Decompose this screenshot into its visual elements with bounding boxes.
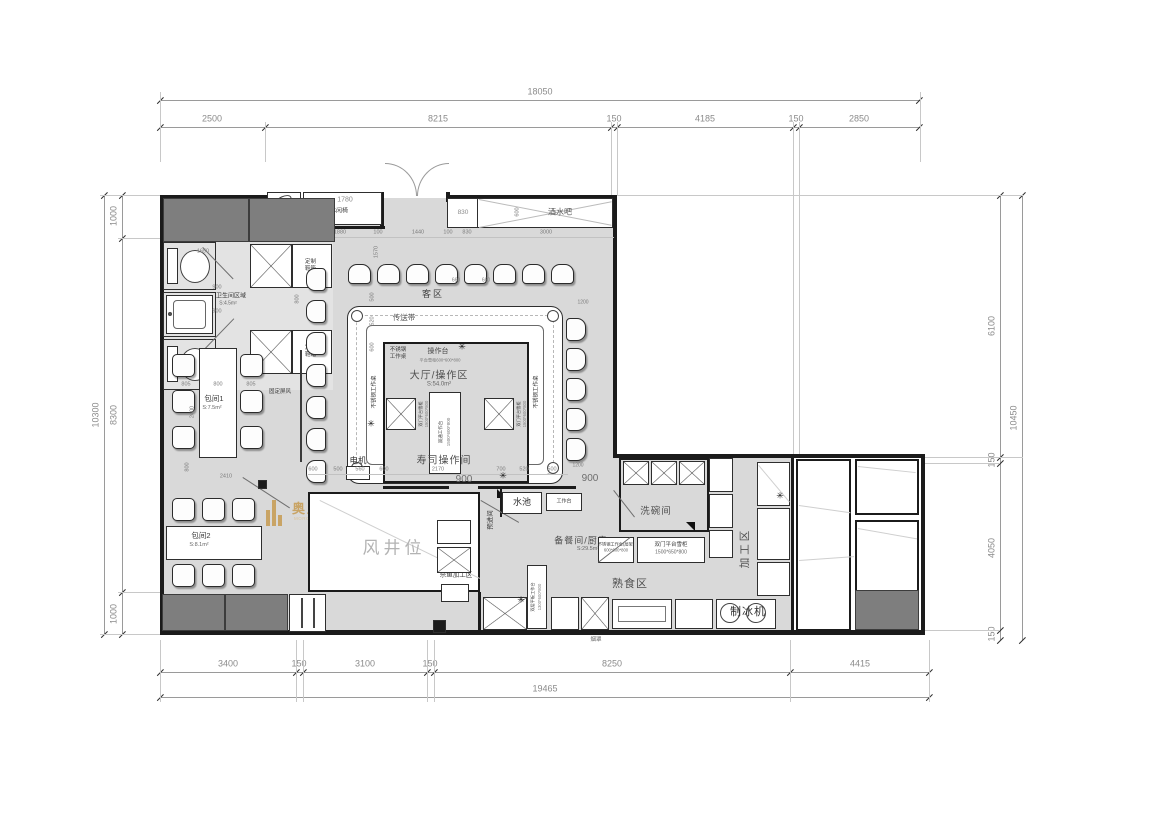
chair xyxy=(172,426,195,449)
room1-area: S:7.5m² xyxy=(202,405,221,411)
ext-line xyxy=(265,122,266,162)
stool xyxy=(551,264,574,284)
dim-bottom-2: 3100 xyxy=(355,660,375,669)
dim-b500b: 500 xyxy=(547,467,556,473)
dim-b520: 520 xyxy=(519,467,528,473)
drain-symbol: ✳ xyxy=(517,595,525,606)
door-wedge xyxy=(686,522,695,531)
door-900a: 900 xyxy=(456,475,473,485)
dim-v520: 520 xyxy=(370,316,376,325)
process-cabinet xyxy=(757,562,790,596)
stool xyxy=(306,428,326,451)
door-hinge-block xyxy=(258,480,267,489)
dim-top-1: 8215 xyxy=(428,115,448,124)
stool xyxy=(566,438,586,461)
drain-symbol: ✳ xyxy=(776,491,784,502)
dim-b2170: 2170 xyxy=(432,467,444,473)
process-cabinet xyxy=(757,508,790,560)
hall-label: 大厅/操作区 xyxy=(410,367,469,382)
dim-line-left-total xyxy=(104,195,105,635)
stool xyxy=(306,396,326,419)
ss-desk-right: 不锈钢工作桌 xyxy=(534,375,540,408)
dim-1200b: 1200 xyxy=(572,464,583,469)
dim-b500a: 500 xyxy=(333,467,342,473)
ext-line xyxy=(303,640,304,702)
stool xyxy=(306,268,326,291)
stool xyxy=(522,264,545,284)
hood-label: 烟罩 xyxy=(590,637,601,643)
ss-desk-top-1: 不锈钢 xyxy=(390,347,407,353)
dim-900a: 900 xyxy=(212,285,221,291)
conveyor-label: 传送带 xyxy=(393,314,416,322)
dim-line-bottom-seg xyxy=(160,672,930,673)
dim-100b: 100 xyxy=(443,230,452,236)
motor-label: 电机 xyxy=(349,456,366,465)
ext-line xyxy=(799,122,800,455)
equip-box xyxy=(675,599,713,629)
shoe-cabinet-xbox-1 xyxy=(250,244,292,288)
dim-b600a: 600 xyxy=(308,467,317,473)
dim-bottom-1: 150 xyxy=(291,660,306,669)
vanity-faucet xyxy=(168,312,172,316)
dbl-wall-line xyxy=(301,598,303,628)
cook-fridge-label: 双门平台雪柜 xyxy=(654,542,687,548)
dim-900b: 900 xyxy=(212,309,221,315)
dim-top-2: 150 xyxy=(606,115,621,124)
dish-cabinet xyxy=(709,458,733,492)
room1-label: 包间1 xyxy=(204,395,223,403)
wind-shaft-label: 风井位 xyxy=(363,534,426,559)
stool xyxy=(306,332,326,355)
dim-top-4: 150 xyxy=(788,115,803,124)
stool xyxy=(566,318,586,341)
stool xyxy=(377,264,400,284)
cook-fridge-size: 1500*650*800 xyxy=(655,550,687,556)
ext-line xyxy=(118,238,160,239)
fridge-left-size: 1500*600*800 xyxy=(425,401,429,428)
dim-right-3: 150 xyxy=(988,626,997,641)
hall-area: S:54.0m² xyxy=(427,382,451,389)
double-work-size: 1500*600*800 xyxy=(447,418,452,447)
chair xyxy=(172,564,195,587)
stool xyxy=(306,300,326,323)
flat-table-size: 1300*600*800 xyxy=(538,584,542,611)
dishwash-label: 洗碗间 xyxy=(640,503,672,517)
equip-box xyxy=(581,597,609,630)
wall-right-rooms xyxy=(791,458,794,632)
worktop-label: 工作台 xyxy=(556,499,571,505)
dim-b600b: 600 xyxy=(379,467,388,473)
bar-830: 830 xyxy=(458,210,469,217)
fridge-right-size: 1500*600*800 xyxy=(523,401,527,428)
process-label: 加工区 xyxy=(740,528,751,569)
dim-830: 830 xyxy=(462,230,471,236)
dim-660b: 660 xyxy=(482,279,490,284)
dim-805b: 805 xyxy=(246,382,255,388)
drinks-bar-label: 酒水吧 xyxy=(548,209,572,218)
fridge-right-label: 双门平台雪柜 xyxy=(517,401,521,426)
floor-plan-sheet: 18050 2500 8215 150 4185 150 2850 3400 1… xyxy=(0,0,1150,813)
fridge-xbox-right xyxy=(484,398,514,430)
dim-v500: 500 xyxy=(370,292,376,301)
fixed-screen xyxy=(300,350,302,462)
dish-cabinet xyxy=(709,494,733,528)
dim-bottom-4: 8250 xyxy=(602,660,622,669)
ext-line xyxy=(100,195,160,196)
ext-line xyxy=(118,592,160,593)
dim-v600: 600 xyxy=(370,342,376,351)
stool xyxy=(306,364,326,387)
shaft-divider xyxy=(224,595,226,630)
tick xyxy=(997,637,1004,644)
chair xyxy=(232,498,255,521)
kitchen-box xyxy=(441,584,469,602)
dim-800b: 800 xyxy=(185,462,191,471)
console-label: 操作台 xyxy=(428,348,449,356)
dim-left-total: 10300 xyxy=(92,402,101,427)
dim-2400: 2400 xyxy=(190,406,196,418)
dim-top-3: 4185 xyxy=(695,115,715,124)
dim-line-bottom-total xyxy=(160,697,930,698)
shaft-block-bottomright xyxy=(855,590,919,630)
chair xyxy=(202,498,225,521)
cooked-label: 熟食区 xyxy=(612,575,648,591)
chair xyxy=(240,426,263,449)
ext-line xyxy=(100,634,160,635)
sink-unit xyxy=(679,461,705,485)
ice-maker-label: 制冰机 xyxy=(730,603,766,619)
dim-line-right-seg xyxy=(1000,195,1001,640)
dim-805a: 805 xyxy=(181,382,190,388)
watermark-logo-icon xyxy=(266,500,286,526)
stool xyxy=(566,378,586,401)
dim-1200a: 1200 xyxy=(577,301,588,306)
stool xyxy=(566,348,586,371)
fixed-screen-label: 固定屏风 xyxy=(269,389,291,395)
double-work-label: 双通工作台 xyxy=(439,421,444,444)
double-wall-room xyxy=(289,594,326,632)
shaft-divider xyxy=(248,199,250,241)
vanity-basin xyxy=(173,300,206,329)
stool xyxy=(406,264,429,284)
dbl-wall-line xyxy=(313,598,315,628)
drain-symbol: ✳ xyxy=(458,342,466,353)
ext-line xyxy=(925,463,1000,464)
flat-table-label: 双层平板工作台 xyxy=(531,582,535,611)
tick xyxy=(1019,637,1026,644)
dim-bottom-3: 150 xyxy=(422,660,437,669)
ext-line xyxy=(925,630,1000,631)
room2-label: 包间2 xyxy=(191,532,210,540)
right-room-a xyxy=(796,459,851,631)
ext-line xyxy=(160,640,161,702)
drain-symbol: ✳ xyxy=(367,419,375,430)
dim-1570: 1570 xyxy=(374,246,380,258)
dim-1650: 1650 xyxy=(197,249,209,255)
dim-left-1: 8300 xyxy=(110,405,119,425)
entrance-door-arc-right xyxy=(417,163,449,196)
dim-line-right-total xyxy=(1022,195,1023,640)
dim-right-total: 10450 xyxy=(1010,405,1019,430)
ext-line xyxy=(434,640,435,702)
ext-line xyxy=(925,457,1023,458)
dim-row-line xyxy=(308,474,568,475)
dim-100a: 100 xyxy=(373,230,382,236)
dish-cabinet xyxy=(709,530,733,558)
dim-left-2: 1000 xyxy=(110,604,119,624)
dim-top-0: 2500 xyxy=(202,115,222,124)
fridge-xbox-left xyxy=(386,398,416,430)
chair xyxy=(202,564,225,587)
ext-line xyxy=(793,122,794,455)
column xyxy=(433,620,446,633)
stool xyxy=(493,264,516,284)
dim-800-toilet: 800 xyxy=(295,294,301,303)
ext-line xyxy=(929,640,930,702)
ext-line xyxy=(617,122,618,195)
ext-line xyxy=(920,92,921,162)
chair xyxy=(172,354,195,377)
chair xyxy=(240,354,263,377)
fridge-left-label: 双门平台雪柜 xyxy=(419,401,423,426)
ss-desk-left: 不锈钢工作桌 xyxy=(372,375,378,408)
dim-line-left-seg xyxy=(122,195,123,635)
ext-line xyxy=(427,640,428,702)
ext-line xyxy=(790,640,791,702)
dim-right-0: 6100 xyxy=(988,316,997,336)
wall-wing-right xyxy=(921,454,925,634)
dim-3000: 3000 xyxy=(540,230,552,236)
ext-line xyxy=(611,122,612,195)
sushi-room-label: 寿司操作间 xyxy=(417,452,472,467)
dim-right-2: 4050 xyxy=(988,538,997,558)
sink-unit xyxy=(623,461,649,485)
dim-bottom-5: 4415 xyxy=(850,660,870,669)
equip-box xyxy=(551,597,579,630)
dim-1440: 1440 xyxy=(412,230,424,236)
guest-area-label: 客区 xyxy=(422,290,444,300)
dim-top-total: 18050 xyxy=(527,88,552,97)
room2-table xyxy=(166,526,262,560)
drain-symbol: ✳ xyxy=(499,471,507,482)
toilet-area: S:4.5m² xyxy=(219,301,237,307)
chair xyxy=(240,390,263,413)
dim-line-top-total xyxy=(160,100,920,101)
dim-bottom-total: 19465 xyxy=(532,685,557,694)
wall-shaft-right xyxy=(478,592,481,634)
kitchen-xbox xyxy=(437,547,471,573)
dim-1880: 1880 xyxy=(334,230,346,236)
dim-top-5: 2850 xyxy=(849,115,869,124)
sink-unit xyxy=(651,461,677,485)
equip-box-inner xyxy=(618,606,666,622)
belt-wheel xyxy=(547,310,559,322)
wall-main-right xyxy=(613,195,617,458)
dim-bottom-0: 3400 xyxy=(218,660,238,669)
dim-800: 800 xyxy=(213,382,222,388)
ext-line xyxy=(617,195,1023,196)
chair xyxy=(232,564,255,587)
dim-b560: 560 xyxy=(355,467,364,473)
dim-left-0: 1000 xyxy=(110,206,119,226)
wall-corridor xyxy=(383,486,449,489)
ext-line xyxy=(296,640,297,702)
stool xyxy=(348,264,371,284)
bench-dim: 1780 xyxy=(337,197,353,204)
ss-desk-top-2: 工作桌 xyxy=(390,354,407,360)
wall-corridor-2 xyxy=(478,486,576,489)
bar-600: 600 xyxy=(515,207,521,216)
door-900b: 900 xyxy=(582,474,599,484)
wc1-tank xyxy=(167,248,178,284)
prep-kitchen-area: S:29.5m² xyxy=(577,546,599,552)
dim-line-top-seg xyxy=(160,127,920,128)
stool xyxy=(566,408,586,431)
entrance-door-arc-left xyxy=(385,163,417,196)
console-fridge-size: 平台雪柜600*600*800 xyxy=(420,359,461,364)
room2-area: S:8.1m² xyxy=(189,542,208,548)
dim-660a: 660 xyxy=(452,279,460,284)
belt-wheel xyxy=(351,310,363,322)
pool-label: 水池 xyxy=(513,498,531,508)
preentry-label: 预进间 xyxy=(488,510,495,530)
wc1-bowl xyxy=(180,250,210,283)
ext-line xyxy=(160,92,161,162)
dim-right-1: 150 xyxy=(988,452,997,467)
kitchen-box xyxy=(437,520,471,544)
dim-2410: 2410 xyxy=(220,474,232,480)
chair xyxy=(172,498,195,521)
